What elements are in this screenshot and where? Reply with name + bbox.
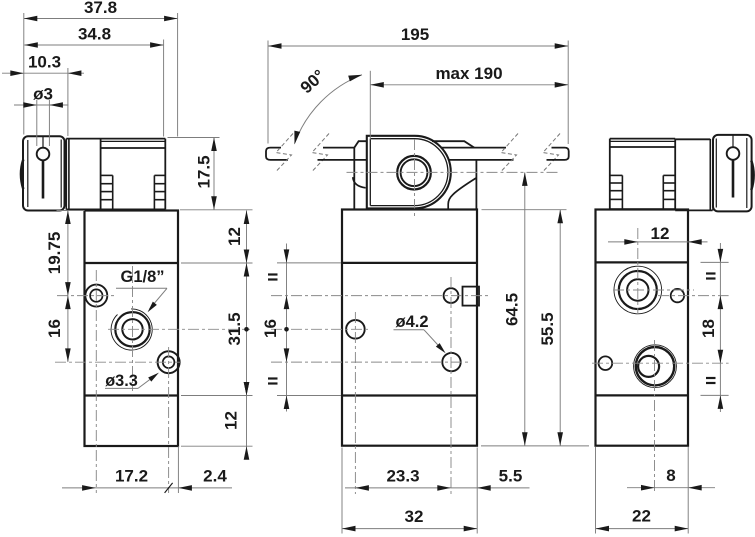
svg-text:64.5: 64.5 xyxy=(503,293,522,326)
svg-text:22: 22 xyxy=(632,507,651,526)
svg-text:ø4.2: ø4.2 xyxy=(395,313,428,331)
svg-text:18: 18 xyxy=(699,319,718,338)
svg-text:G1/8”: G1/8” xyxy=(120,268,164,286)
svg-text:ø3.3: ø3.3 xyxy=(105,372,138,390)
svg-text:max 190: max 190 xyxy=(435,64,502,83)
svg-text:17.2: 17.2 xyxy=(115,466,148,485)
svg-text:12: 12 xyxy=(651,224,670,243)
svg-text:ø3: ø3 xyxy=(33,84,53,103)
svg-text:10.3: 10.3 xyxy=(28,53,61,72)
svg-text:55.5: 55.5 xyxy=(538,312,557,345)
svg-text:12: 12 xyxy=(225,227,244,246)
svg-text:195: 195 xyxy=(401,25,429,44)
svg-text:2.4: 2.4 xyxy=(203,466,227,485)
svg-text:8: 8 xyxy=(666,466,675,485)
svg-text:23.3: 23.3 xyxy=(386,466,419,485)
svg-text:5.5: 5.5 xyxy=(499,466,523,485)
svg-text:16: 16 xyxy=(261,319,280,338)
svg-text:32: 32 xyxy=(405,507,424,526)
svg-text:19.75: 19.75 xyxy=(45,232,64,275)
svg-text:16: 16 xyxy=(45,319,64,338)
svg-text:37.8: 37.8 xyxy=(84,0,117,17)
svg-text:31.5: 31.5 xyxy=(225,312,244,345)
svg-text:12: 12 xyxy=(222,411,241,430)
svg-text:17.5: 17.5 xyxy=(195,155,214,188)
svg-text:34.8: 34.8 xyxy=(78,24,111,43)
